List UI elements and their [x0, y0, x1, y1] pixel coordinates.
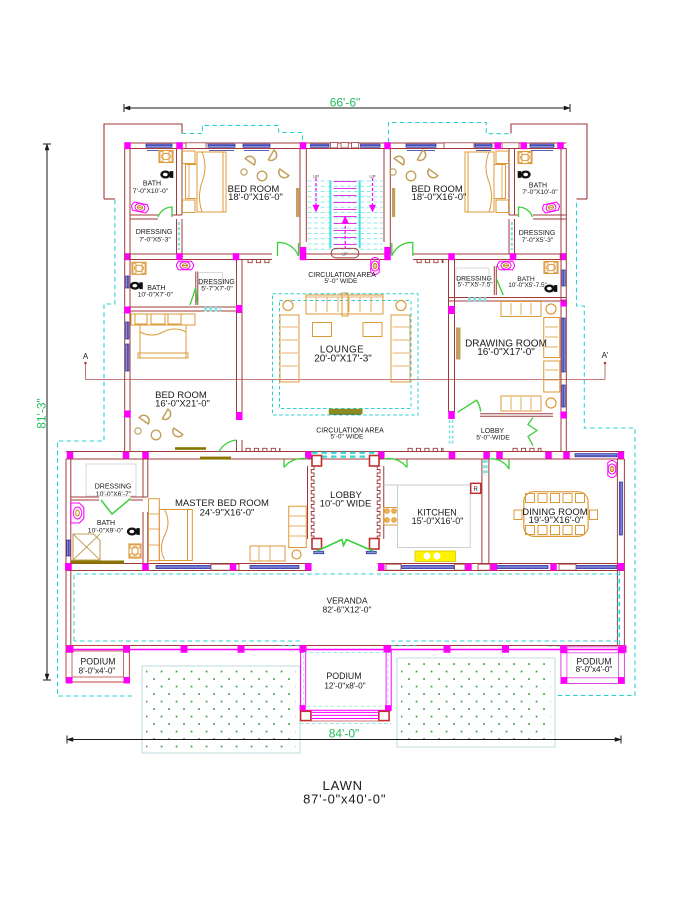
svg-text:20'-0"X17'-3": 20'-0"X17'-3" [314, 354, 372, 365]
svg-text:BATH: BATH [143, 181, 161, 188]
svg-text:5'-7"X5'-7.5": 5'-7"X5'-7.5" [457, 281, 492, 288]
svg-text:87'-0"x40'-0": 87'-0"x40'-0" [303, 792, 386, 807]
svg-text:DRESSING: DRESSING [95, 484, 132, 491]
svg-text:81'-3": 81'-3" [35, 398, 49, 429]
svg-text:7'-0"X10'-0": 7'-0"X10'-0" [133, 188, 169, 195]
svg-text:DRESSING: DRESSING [136, 229, 173, 236]
svg-text:A': A' [602, 351, 609, 360]
svg-text:UP: UP [342, 252, 348, 257]
svg-text:PODIUM: PODIUM [326, 671, 361, 681]
svg-text:7'-0"X5'-3": 7'-0"X5'-3" [139, 237, 171, 244]
svg-text:82'-6"X12'-0": 82'-6"X12'-0" [323, 605, 372, 615]
svg-text:10'-0" WIDE: 10'-0" WIDE [320, 499, 372, 510]
svg-text:UP: UP [369, 174, 375, 179]
svg-text:12'-0"x8'-0": 12'-0"x8'-0" [324, 682, 365, 691]
svg-text:PODIUM: PODIUM [80, 657, 115, 667]
svg-text:16'-0"X21'-0": 16'-0"X21'-0" [155, 399, 210, 410]
svg-text:10'-0"X5'-7.5": 10'-0"X5'-7.5" [508, 282, 547, 289]
svg-text:15'-0"X16'-0": 15'-0"X16'-0" [412, 516, 464, 526]
svg-text:66'-6": 66'-6" [330, 96, 361, 110]
svg-text:10'-0"X9'-0": 10'-0"X9'-0" [88, 528, 124, 535]
svg-text:5'-0" WIDE: 5'-0" WIDE [324, 278, 358, 285]
svg-text:7'-0"X10'-0": 7'-0"X10'-0" [522, 189, 558, 196]
svg-text:18'-0"X16'-0": 18'-0"X16'-0" [412, 192, 467, 203]
svg-text:7'-0"X5'-3": 7'-0"X5'-3" [522, 237, 554, 244]
svg-text:BATH: BATH [97, 520, 115, 527]
svg-text:24'-9"X16'-0": 24'-9"X16'-0" [200, 508, 255, 519]
svg-text:DRESSING: DRESSING [519, 230, 556, 237]
svg-text:5'-0"-WIDE: 5'-0"-WIDE [476, 435, 510, 442]
svg-text:10'-0"X7'-0": 10'-0"X7'-0" [138, 291, 174, 298]
svg-text:8'-0"x4'-0": 8'-0"x4'-0" [576, 665, 613, 674]
svg-text:R: R [474, 487, 479, 493]
svg-text:8'-0"x4'-0": 8'-0"x4'-0" [79, 667, 116, 676]
svg-text:UP: UP [313, 174, 319, 179]
svg-text:5'-0" WIDE: 5'-0" WIDE [330, 434, 364, 441]
svg-text:10'-0"X6'-7": 10'-0"X6'-7" [96, 491, 132, 498]
svg-text:16'-0"X17'-0": 16'-0"X17'-0" [477, 347, 535, 358]
svg-text:A: A [83, 352, 89, 361]
svg-text:84'-0": 84'-0" [329, 727, 360, 741]
svg-text:19'-9"X16'-0": 19'-9"X16'-0" [529, 515, 584, 526]
svg-text:5'-7"X7'-0": 5'-7"X7'-0" [201, 286, 233, 293]
svg-text:18'-0"X16'-0": 18'-0"X16'-0" [228, 192, 283, 203]
